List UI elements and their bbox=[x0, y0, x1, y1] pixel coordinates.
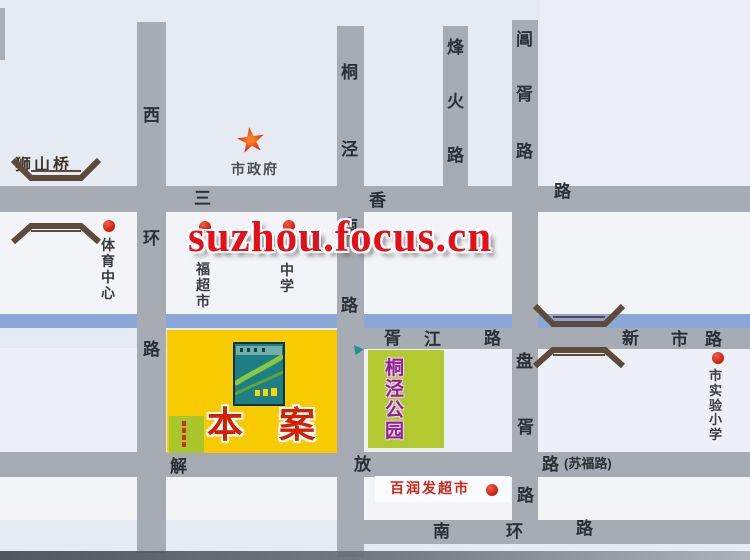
road-label-char: 南 bbox=[433, 523, 450, 540]
xujiang-river bbox=[0, 314, 750, 328]
road-label-char: 放 bbox=[354, 456, 371, 473]
watermark: suzhou.focus.cn bbox=[188, 216, 492, 259]
sports-center-label: 体育中心 bbox=[100, 238, 116, 302]
fu-supermarket-label: 福超市 bbox=[195, 262, 211, 310]
road-label-char: 路 bbox=[484, 330, 501, 347]
road-nanhuan bbox=[350, 520, 750, 544]
park-block: 桐泾公园 bbox=[368, 350, 444, 448]
road-label-char: 西 bbox=[143, 107, 160, 124]
road-label-char: 路 bbox=[554, 183, 571, 200]
map-background-block bbox=[540, 0, 750, 186]
tiny-red-text-mark bbox=[182, 421, 186, 449]
road-alt-name: (苏福路) bbox=[564, 457, 612, 470]
road-label-char: 盘 bbox=[516, 353, 533, 370]
road-jiefang-sufu bbox=[0, 452, 750, 477]
road-label-char: 路 bbox=[516, 143, 533, 160]
road-label-char: 路 bbox=[143, 341, 160, 358]
city-government-star-icon bbox=[235, 125, 266, 156]
project-logo bbox=[233, 342, 285, 406]
road-label-char: 市 bbox=[671, 331, 688, 348]
road-label-char: 烽 bbox=[447, 39, 464, 56]
road-label-char: 胥 bbox=[384, 330, 401, 347]
road-tongjing bbox=[337, 26, 364, 557]
road-label-char: 环 bbox=[143, 230, 160, 247]
project-site-block: 本案 bbox=[167, 330, 337, 453]
road-label-char: 火 bbox=[447, 93, 464, 110]
road-label-char: 桐 bbox=[341, 64, 358, 81]
road-label-char: 三 bbox=[194, 190, 211, 207]
road-label-char: 环 bbox=[506, 523, 523, 540]
bridge-icon bbox=[532, 343, 626, 369]
road-label-char: 解 bbox=[170, 458, 187, 475]
bridge-icon bbox=[10, 219, 102, 245]
road-label-char: 泾 bbox=[341, 141, 358, 158]
road-label-char: 路 bbox=[705, 331, 722, 348]
green-strip bbox=[169, 416, 204, 453]
suzhou-location-map: 西 环 路 桐 泾 南 路 烽 火 路 阊 胥 路 盘 胥 路 三 香 路 胥 … bbox=[0, 0, 750, 560]
scan-artifact bbox=[0, 8, 5, 60]
poi-dot bbox=[486, 484, 498, 496]
poi-dot bbox=[103, 220, 115, 232]
poi-dot bbox=[712, 352, 724, 364]
road-label-char: 胥 bbox=[517, 419, 534, 436]
road-label-char: 阊 bbox=[516, 31, 533, 48]
bridge-icon bbox=[532, 303, 626, 329]
road-label-char: 路 bbox=[341, 297, 358, 314]
scan-edge bbox=[0, 551, 750, 560]
road-label-char: 香 bbox=[369, 192, 386, 209]
project-title: 本案 bbox=[207, 407, 351, 443]
road-label-char: 路 bbox=[542, 456, 559, 473]
road-label-char: 江 bbox=[424, 331, 441, 348]
project-logo-art bbox=[235, 344, 283, 404]
rtmart-label: 百润发超市 bbox=[390, 481, 470, 495]
city-government-label: 市政府 bbox=[231, 162, 279, 176]
road-label-char: 路 bbox=[447, 147, 464, 164]
experimental-primary-label: 市实验小学 bbox=[708, 369, 723, 443]
road-label-char: 路 bbox=[576, 520, 593, 537]
park-label: 桐泾公园 bbox=[385, 359, 406, 443]
road-label-char: 路 bbox=[517, 487, 534, 504]
road-label-char: 胥 bbox=[516, 86, 533, 103]
middle-school-label: 中学 bbox=[279, 263, 295, 295]
bridge-icon bbox=[10, 157, 102, 183]
